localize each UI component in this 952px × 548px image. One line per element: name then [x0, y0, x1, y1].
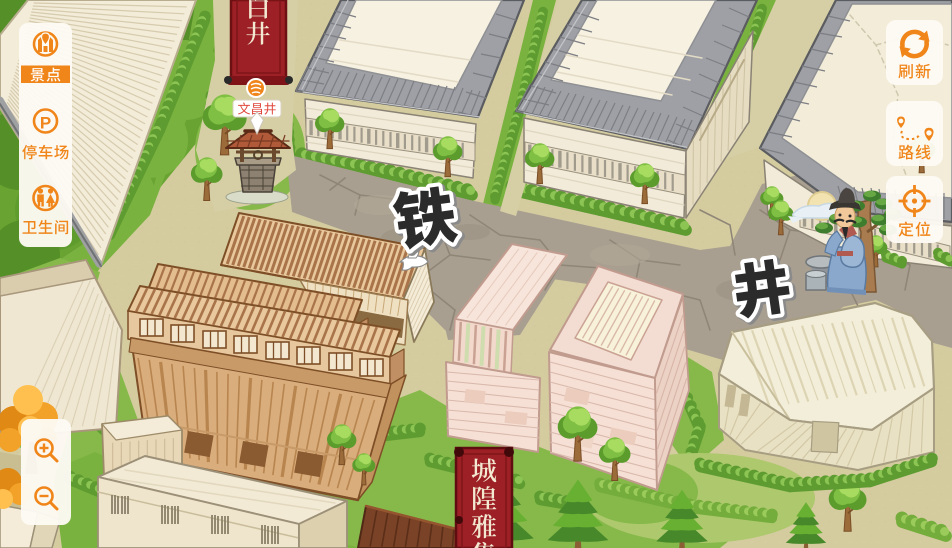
- svg-text:P: P: [40, 114, 51, 133]
